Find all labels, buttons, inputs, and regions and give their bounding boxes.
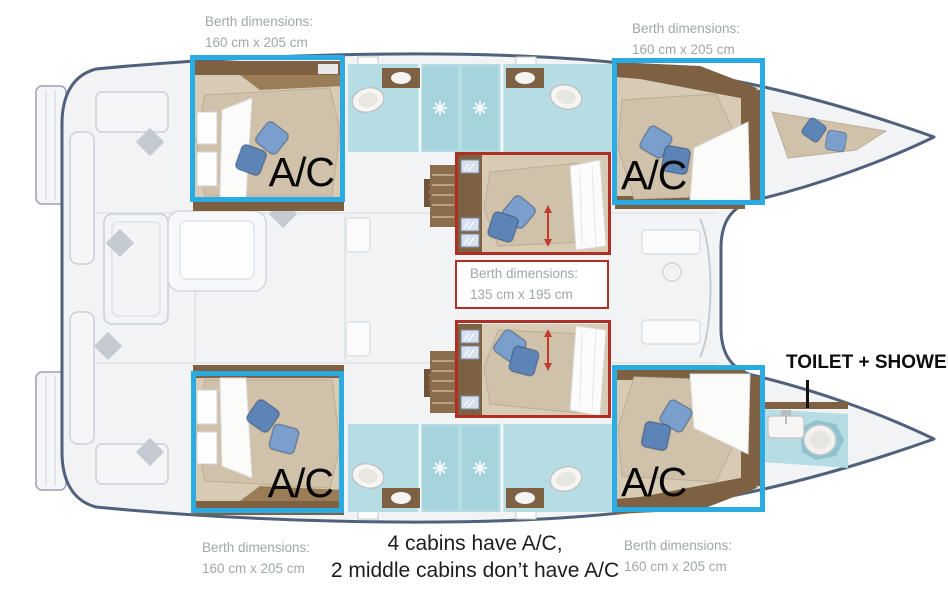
ac-cabin-highlight-fwd-bottom: A/C xyxy=(612,365,765,512)
berth-dimensions-line1: Berth dimensions: xyxy=(470,264,607,284)
middle-berth-dimensions-box: Berth dimensions: 135 cm x 195 cm xyxy=(455,260,609,309)
caption-line2: 2 middle cabins don’t have A/C xyxy=(270,558,680,585)
ac-label: A/C xyxy=(621,462,686,503)
shower-icon xyxy=(433,101,447,115)
ac-label: A/C xyxy=(621,155,686,196)
bathroom-bottom xyxy=(348,424,626,512)
ac-label: A/C xyxy=(269,152,334,193)
bathroom-top xyxy=(348,64,626,152)
pillow-icon xyxy=(825,130,848,153)
berth-dimensions-label-top-right: Berth dimensions: 160 cm x 205 cm xyxy=(632,19,740,61)
mid-cabin-highlight-bottom xyxy=(455,320,611,418)
berth-dimensions-line2: 135 cm x 195 cm xyxy=(470,285,607,305)
ac-cabin-highlight-aft-top: A/C xyxy=(190,55,345,202)
shower-icon xyxy=(473,101,487,115)
caption-line1: 4 cabins have A/C, xyxy=(270,531,680,558)
ac-cabin-highlight-aft-bottom: A/C xyxy=(191,371,344,513)
ac-label: A/C xyxy=(268,463,333,504)
yacht-layout-diagram: A/C A/C A/C A/C Berth dimensions: 135 cm… xyxy=(0,0,948,600)
mid-cabin-highlight-top xyxy=(455,152,611,255)
stairs-icon xyxy=(430,351,456,413)
shower-icon xyxy=(433,461,447,475)
toilet-pointer-line xyxy=(806,380,809,408)
toilet-shower-label: TOILET + SHOWER xyxy=(786,352,948,374)
berth-dimensions-label-top-left: Berth dimensions: 160 cm x 205 cm xyxy=(205,12,313,54)
caption: 4 cabins have A/C, 2 middle cabins don’t… xyxy=(270,531,680,585)
cockpit-table xyxy=(104,214,168,324)
saloon-table xyxy=(180,221,254,279)
stairs-icon xyxy=(430,165,456,227)
shower-icon xyxy=(473,461,487,475)
ac-cabin-highlight-fwd-top: A/C xyxy=(612,58,765,205)
